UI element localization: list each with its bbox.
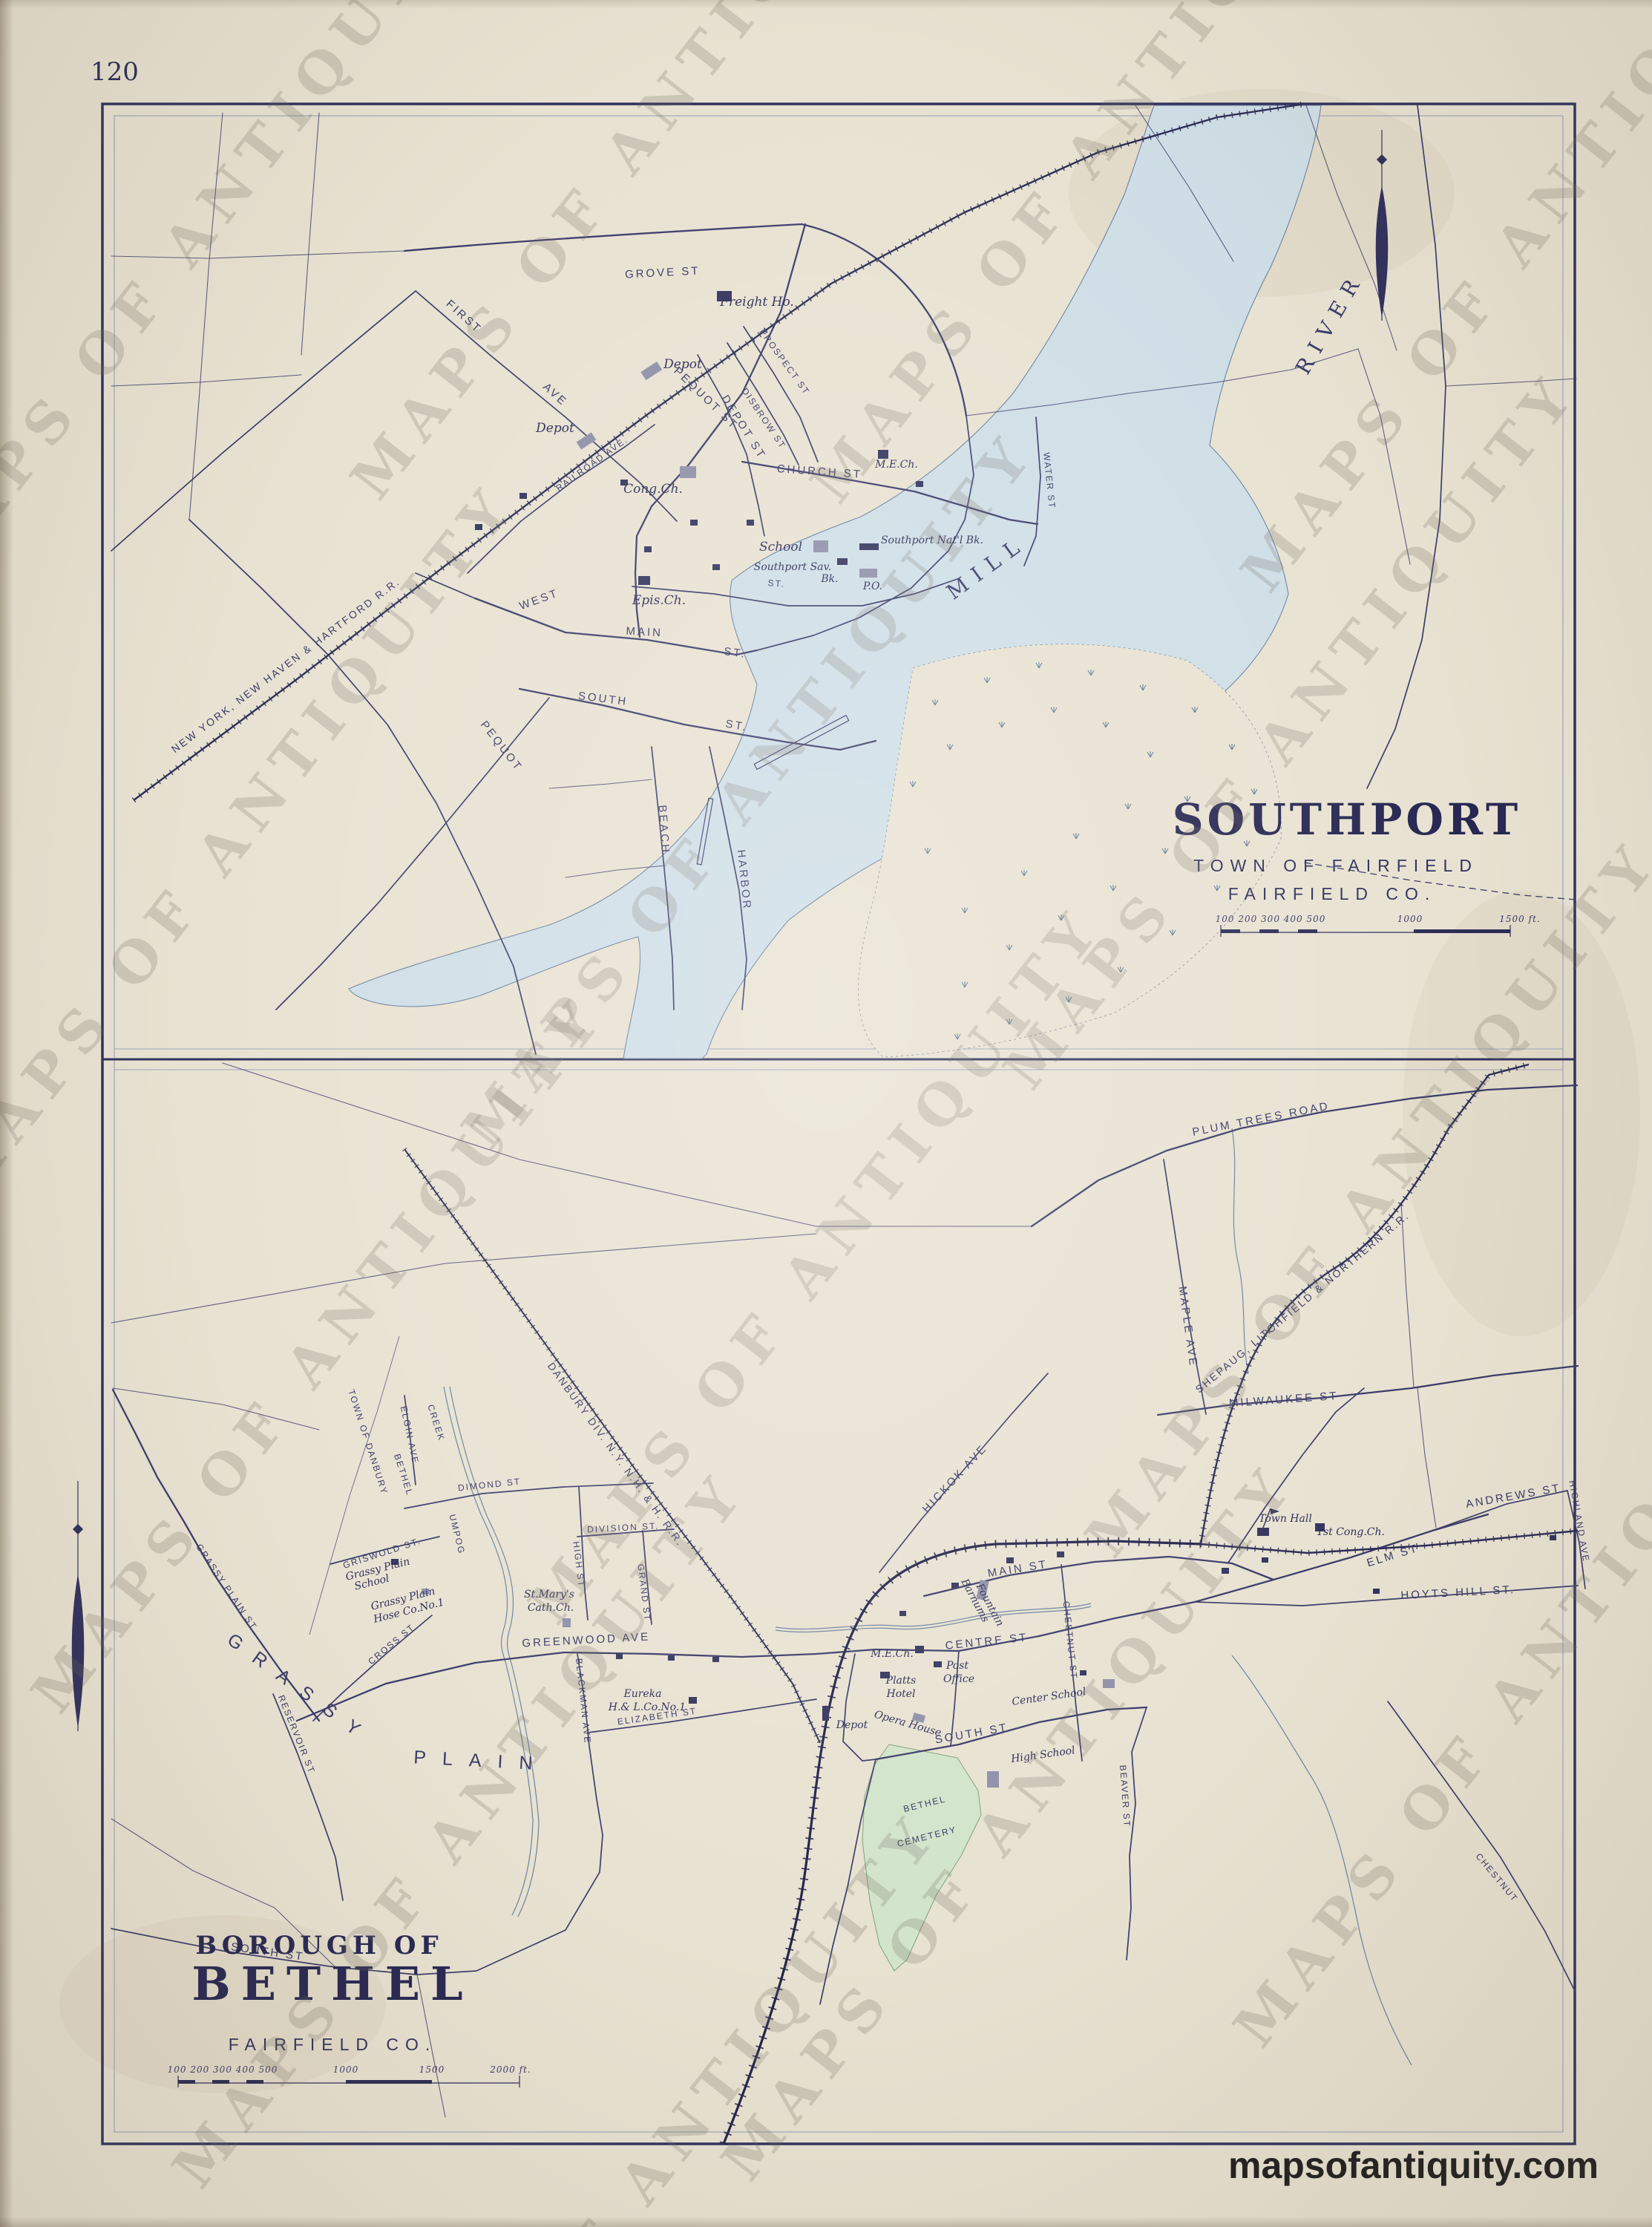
poi-label: Post <box>945 1660 968 1672</box>
street-label: ST. <box>723 645 747 661</box>
page-number: 120 <box>91 57 139 87</box>
street-label: ELM ST <box>1366 1542 1420 1569</box>
street-label: PROSPECT ST <box>757 327 812 396</box>
street-label: HICKOK AVE <box>920 1442 990 1515</box>
scale-label: 2000 ft. <box>489 2064 531 2075</box>
poi-label: Bk. <box>820 573 838 585</box>
poi-label: M.E.Ch. <box>870 1648 914 1660</box>
village-stream <box>776 1603 1091 1632</box>
street-label: GROVE ST <box>625 264 701 281</box>
poi-label: Office <box>943 1673 974 1685</box>
poi-label: 1st Cong.Ch. <box>1317 1526 1385 1538</box>
antique-map-scan: 120 <box>0 0 1652 2227</box>
street-label: MAIN <box>626 625 663 640</box>
poi-label: Southport Sav. <box>754 561 831 573</box>
street-label: CREEK <box>425 1403 447 1442</box>
street-label: MAIN ST <box>987 1558 1049 1580</box>
watermark-text: MAPS OF ANTIQUITY <box>160 1458 760 2200</box>
poi-label: Depot <box>535 421 574 436</box>
poi-label: Depot <box>836 1719 868 1731</box>
watermark-text: MAPS OF ANTIQUITY <box>1221 1317 1652 2059</box>
poi-label: H.& L.Co.No.1 <box>608 1701 686 1713</box>
street-label: WEST <box>518 586 561 612</box>
street-label: UMPOG <box>447 1513 467 1555</box>
scale-label: 1500 ft. <box>1499 914 1540 924</box>
street-label: CROSS ST <box>366 1622 416 1667</box>
street-label: PEQUOT <box>478 719 525 774</box>
poi-label: Epis.Ch. <box>632 593 686 608</box>
street-label: PLUM TREES ROAD <box>1191 1099 1331 1139</box>
boundary-label: TOWN OF DANBURY <box>346 1388 390 1496</box>
poi-label: Platts <box>885 1675 917 1687</box>
scale-label: 1000 <box>1397 914 1423 924</box>
scale-label: 100 200 300 400 500 <box>1216 914 1326 924</box>
poi-label: Opera House <box>873 1709 943 1739</box>
poi-label: Cong.Ch. <box>623 482 683 497</box>
watermark-layer: MAPS OF ANTIQUITY MAPS OF ANTIQUITY MAPS… <box>0 0 1652 2227</box>
map-subtitle: FAIRFIELD CO. <box>1228 884 1437 903</box>
scale-label: 1500 <box>419 2064 445 2075</box>
street-label: CENTRE ST <box>945 1631 1029 1652</box>
street-label: BEAVER ST <box>1118 1765 1133 1828</box>
street-label: ST. <box>767 578 785 589</box>
watermark-text: MAPS OF ANTIQUITY <box>0 0 496 604</box>
poi-label: Eureka <box>623 1688 661 1700</box>
poi-label: Hotel <box>885 1688 915 1700</box>
street-label: SOUTH ST <box>934 1721 1009 1747</box>
scale-label: 1000 <box>333 2064 359 2075</box>
street-label: MAPLE AVE <box>1176 1286 1199 1368</box>
map-subtitle: TOWN OF FAIRFIELD <box>1193 856 1478 875</box>
poi-label: Depot <box>663 357 702 372</box>
watermark-text: MAPS OF ANTIQUITY <box>0 471 529 1213</box>
poi-label: School <box>759 540 802 555</box>
street-label: GRASSY PLAIN ST <box>194 1542 259 1632</box>
street-label: ANDREWS ST <box>1465 1482 1562 1511</box>
poi-label: Freight Ho. <box>719 295 794 310</box>
street-label: CHESTNUT ST <box>1061 1600 1079 1680</box>
street-label: AVE <box>540 381 570 409</box>
street-label: HOYTS HILL ST. <box>1400 1583 1515 1602</box>
street-label: DEPOT ST <box>718 393 768 462</box>
site-credit: mapsofantiquity.com <box>1228 2145 1599 2186</box>
atlas-page: 120 <box>0 0 1652 2227</box>
